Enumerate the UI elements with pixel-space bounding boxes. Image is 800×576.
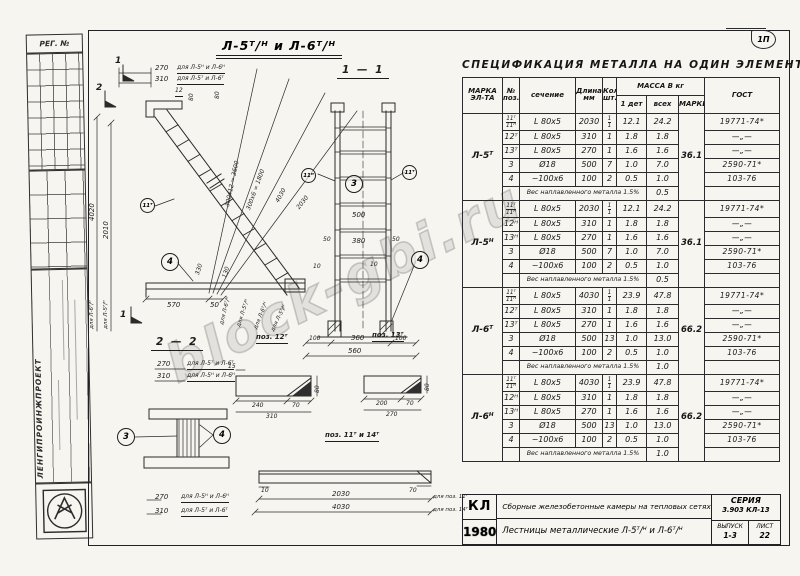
spec-cell: Вес наплавленного металла 1.5%: [520, 360, 647, 374]
col-header-mass-group: МАССА В кг: [617, 77, 705, 95]
spec-row: 12ᴴL 80х531011.81.8—„—: [463, 217, 780, 231]
spec-cell: Ø18: [520, 419, 576, 433]
note-2010: для Л-5ᵀ/ᴴ: [103, 300, 109, 329]
spec-cell: 1.6: [617, 318, 647, 332]
organization-logo: [35, 482, 93, 539]
col-header-mass-all: всех: [647, 95, 679, 113]
spec-cell: 1.8: [647, 130, 679, 144]
spec-cell: 103-76: [705, 172, 780, 186]
spec-cell: 7.0: [647, 158, 679, 172]
spec-cell: [705, 447, 780, 461]
spec-cell: Ø18: [520, 158, 576, 172]
dim-570: 570: [167, 302, 180, 310]
spec-cell: —„—: [705, 130, 780, 144]
spec-cell: 7.0: [647, 245, 679, 259]
spec-row: 13ᴴL 80х527011.61.6—„—: [463, 231, 780, 245]
spec-cell: 0.5: [617, 172, 647, 186]
spec-cell: L 80х5: [520, 304, 576, 318]
spec-cell: 13.0: [647, 332, 679, 346]
spec-cell: Вес наплавленного металла 1.5%: [520, 447, 647, 461]
spec-cell: 23.9: [617, 287, 647, 304]
spec-cell: —„—: [705, 304, 780, 318]
balloon-4-incline: 4: [161, 253, 179, 271]
spec-cell: L 80х5: [520, 287, 576, 304]
spec-cell: 1: [603, 391, 617, 405]
spec-cell: 47.8: [647, 287, 679, 304]
spec-cell: 2: [603, 433, 617, 447]
spec-cell: 100: [576, 433, 603, 447]
sheet-corner-stamp: 1П: [744, 28, 780, 52]
spec-cell: 1.0: [647, 346, 679, 360]
spec-cell: 1.0: [647, 360, 679, 374]
dim-70-p12: 70: [292, 403, 300, 410]
corner-stamp-value: 1П: [751, 30, 776, 49]
spec-cell: 310: [576, 304, 603, 318]
spec-cell: 1: [603, 304, 617, 318]
spec-cell: L 80х5: [520, 391, 576, 405]
spec-cell: —„—: [705, 391, 780, 405]
spec-cell: 500: [576, 245, 603, 259]
spec-mark-mass-cell: 36.1: [679, 200, 705, 287]
dim-310-p12: 310: [266, 414, 277, 421]
organization-name: ЛЕНГИПРОИНЖПРОЕКТ: [33, 274, 45, 478]
spec-cell: 24.2: [647, 113, 679, 130]
spec-cell: 23.9: [617, 374, 647, 391]
spec-cell: 1: [603, 405, 617, 419]
spec-cell: 2: [603, 259, 617, 273]
spec-row: 12ᴴL 80х531011.81.8—„—: [463, 391, 780, 405]
title-block: КЛ 1980 Сборные железобетонные камеры на…: [462, 494, 781, 545]
spec-cell: 100: [576, 346, 603, 360]
spec-cell: 270: [576, 231, 603, 245]
spec-cell: 4030: [576, 374, 603, 391]
spec-cell: L 80х5: [520, 130, 576, 144]
spec-cell: 3: [503, 245, 520, 259]
spec-cell: —„—: [705, 318, 780, 332]
note-310-top: для Л-5ᵀ и Л-6ᵀ: [177, 76, 224, 85]
spec-cell: 12ᴴ: [503, 391, 520, 405]
spec-cell: 12ᵀ: [503, 130, 520, 144]
spec-weld-row: Вес наплавленного металла 1.5%1.0: [463, 360, 780, 374]
title-block-main: Сборные железобетонные камеры на тепловы…: [497, 495, 710, 544]
spec-cell: 1.6: [647, 144, 679, 158]
dim-310-top: 310: [155, 76, 168, 84]
spec-table-section: СПЕЦИФИКАЦИЯ МЕТАЛЛА НА ОДИН ЭЛЕМЕНТ. МА…: [462, 60, 781, 462]
spec-mark-cell: Л-5ᴴ: [463, 200, 503, 287]
spec-cell: 4: [503, 346, 520, 360]
balloon-11t-incline: 11ᵀ: [140, 198, 155, 213]
dim-310-bar: 310: [155, 508, 168, 516]
spec-cell: 2030: [576, 113, 603, 130]
spec-cell: [503, 273, 520, 287]
section-marker-2: 2: [96, 84, 102, 93]
spec-row: 4−100х610020.51.0103-76: [463, 259, 780, 273]
spec-cell: 1.6: [617, 231, 647, 245]
dim-70-bar: 70: [409, 488, 417, 495]
section-marker-1-bottom: 1: [120, 311, 126, 320]
spec-row: 4−100х610020.51.0103-76: [463, 346, 780, 360]
spec-cell: [503, 360, 520, 374]
section-2-2-title: 2 — 2: [151, 337, 203, 351]
spec-weld-row: Вес наплавленного металла 1.5%1.0: [463, 447, 780, 461]
spec-cell: L 80х5: [520, 231, 576, 245]
spec-cell: −100х6: [520, 172, 576, 186]
spec-cell: L 80х5: [520, 113, 576, 130]
spec-cell: 4: [503, 259, 520, 273]
dim-270-s22: 270: [157, 361, 170, 369]
spec-cell: L 80х5: [520, 318, 576, 332]
spec-cell: L 80х5: [520, 217, 576, 231]
spec-cell: Ø18: [520, 332, 576, 346]
issue-label: ВЫПУСК: [717, 523, 743, 530]
balloon-3: 3: [345, 175, 363, 193]
drawing-frame: Л-5ᵀ/ᴴ и Л-6ᵀ/ᴴ 1 2 1 270 для Л-5ᴴ и Л-6…: [88, 30, 790, 546]
spec-cell: 0.5: [617, 346, 647, 360]
spec-cell: 1.0: [647, 433, 679, 447]
logo-emblem-icon: [41, 487, 88, 534]
spec-cell: 11ᵀ11ᴴ: [503, 113, 520, 130]
dim-380: 380: [352, 238, 365, 246]
spec-cell: 11: [603, 200, 617, 217]
spec-cell: 19771-74*: [705, 200, 780, 217]
spec-cell: 3: [503, 419, 520, 433]
spec-cell: 1: [603, 231, 617, 245]
spec-cell: 1.0: [647, 172, 679, 186]
drawing-canvas: [89, 31, 460, 544]
section-marker-1-top: 1: [115, 57, 121, 66]
spec-cell: 500: [576, 332, 603, 346]
title-block-stamp: КЛ 1980: [463, 495, 497, 544]
spec-cell: 7: [603, 245, 617, 259]
spec-cell: 0.5: [617, 433, 647, 447]
side-stamp-column: РЕГ. № ЛЕНГИПРОИНЖПРОЕКТ: [26, 33, 94, 543]
dim-310-s22: 310: [157, 373, 170, 381]
spec-cell: [705, 186, 780, 200]
spec-cell: 13ᴴ: [503, 405, 520, 419]
note-310-bar: для Л-5ᵀ и Л-6ᵀ: [181, 508, 228, 517]
spec-cell: 103-76: [705, 433, 780, 447]
spec-cell: 12.1: [617, 113, 647, 130]
spec-cell: 310: [576, 130, 603, 144]
spec-mark-mass-cell: 66.2: [679, 287, 705, 374]
spec-cell: 1.0: [617, 419, 647, 433]
spec-cell: 13ᵀ: [503, 318, 520, 332]
dim-4020: 4020: [89, 203, 97, 221]
spec-cell: 310: [576, 217, 603, 231]
spec-cell: 1.8: [617, 130, 647, 144]
spec-cell: L 80х5: [520, 374, 576, 391]
spec-cell: —„—: [705, 217, 780, 231]
sheet-name: Лестницы металлические Л-5ᵀ/ᴴ и Л-6ᵀ/ᴴ: [497, 519, 710, 544]
scanned-sheet: РЕГ. № ЛЕНГИПРОИНЖПРОЕКТ block-gbi.ru: [0, 0, 800, 576]
signature-grid-lower: [29, 169, 88, 269]
spec-cell: 1.0: [617, 245, 647, 259]
spec-cell: 47.8: [647, 374, 679, 391]
dim-500: 500: [352, 212, 365, 220]
col-header-pos: № поз.: [503, 77, 520, 113]
spec-cell: 13: [603, 419, 617, 433]
dim-50-right: 50: [392, 237, 400, 244]
spec-cell: L 80х5: [520, 200, 576, 217]
spec-cell: 2030: [576, 200, 603, 217]
spec-cell: 1.8: [647, 217, 679, 231]
spec-cell: 2590-71*: [705, 332, 780, 346]
dim-100-left: 100: [309, 336, 320, 343]
spec-cell: −100х6: [520, 346, 576, 360]
note-270-top: для Л-5ᴴ и Л-6ᴴ: [177, 65, 225, 74]
reg-number-box: РЕГ. №: [26, 33, 83, 53]
spec-cell: L 80х5: [520, 405, 576, 419]
dim-360: 360: [351, 335, 364, 343]
col-header-mass-mark: МАРКИ: [679, 95, 705, 113]
spec-cell: 7: [603, 158, 617, 172]
spec-cell: −100х6: [520, 259, 576, 273]
spec-row: 4−100х610020.51.0103-76: [463, 433, 780, 447]
title-block-right: СЕРИЯ 3.903 КЛ-13 ВЫПУСК 1-3 ЛИСТ 22: [711, 495, 780, 544]
spec-mark-mass-cell: 66.2: [679, 374, 705, 461]
dim-80-p13: 80: [425, 383, 432, 391]
spec-cell: 4: [503, 433, 520, 447]
spec-cell: 0.5: [647, 273, 679, 287]
spec-cell: 4030: [576, 287, 603, 304]
spec-cell: 11ᵀ11ᴴ: [503, 287, 520, 304]
issue-cell: ВЫПУСК 1-3: [712, 521, 750, 544]
spec-cell: 13: [603, 332, 617, 346]
dim-2010: 2010: [103, 221, 111, 239]
spec-cell: 11: [603, 113, 617, 130]
spec-cell: 103-76: [705, 259, 780, 273]
sheet-cell: ЛИСТ 22: [749, 521, 780, 544]
spec-row: 13ᴴL 80х527011.61.6—„—: [463, 405, 780, 419]
dim-10-right: 10: [370, 262, 378, 269]
spec-cell: 1.0: [647, 259, 679, 273]
spec-cell: [705, 360, 780, 374]
stamp-year: 1980: [463, 520, 496, 544]
col-header-length: Длина мм: [576, 77, 603, 113]
spec-cell: Вес наплавленного металла 1.5%: [520, 186, 647, 200]
col-header-mark: МАРКА ЭЛ-ТА: [463, 77, 503, 113]
spec-cell: 1: [603, 318, 617, 332]
dim-4030-bar: 4030: [332, 504, 350, 512]
sheet-value: 22: [749, 532, 780, 540]
spec-cell: 2: [603, 172, 617, 186]
spec-cell: 1.0: [617, 158, 647, 172]
spec-cell: −100х6: [520, 433, 576, 447]
project-name: Сборные железобетонные камеры на тепловы…: [497, 495, 710, 519]
spec-cell: 13.0: [647, 419, 679, 433]
spec-cell: 19771-74*: [705, 287, 780, 304]
ladder-main-title: Л-5ᵀ/ᴴ и Л-6ᵀ/ᴴ: [216, 40, 342, 59]
spec-cell: —„—: [705, 231, 780, 245]
organization-block: ЛЕНГИПРОИНЖПРОЕКТ: [31, 268, 92, 483]
spec-weld-row: Вес наплавленного металла 1.5%0.5: [463, 186, 780, 200]
spec-cell: 1.0: [647, 447, 679, 461]
spec-cell: 1.0: [617, 332, 647, 346]
spec-cell: 3: [503, 332, 520, 346]
note-270-s22: для Л-5ᵀ и Л-6ᵀ: [187, 361, 234, 370]
spec-cell: 11: [603, 374, 617, 391]
spec-row: 12ᵀL 80х531011.81.8—„—: [463, 130, 780, 144]
spec-cell: 310: [576, 391, 603, 405]
spec-cell: 1.6: [617, 144, 647, 158]
spec-cell: 11: [603, 287, 617, 304]
spec-cell: 12ᴴ: [503, 217, 520, 231]
spec-row: 13ᵀL 80х527011.61.6—„—: [463, 318, 780, 332]
spec-mark-cell: Л-6ᴴ: [463, 374, 503, 461]
note-270-bar: для Л-5ᴴ и Л-6ᴴ: [181, 494, 229, 503]
note-310-s22: для Л-5ᴴ и Л-6ᴴ: [187, 373, 235, 382]
spec-cell: 1.8: [617, 391, 647, 405]
dim-80-p12: 80: [315, 385, 322, 393]
dim-270-p13: 270: [386, 412, 397, 419]
section-1-1-title: 1 — 1: [337, 65, 389, 79]
signature-grid-upper: [26, 52, 85, 170]
spec-cell: 1: [603, 217, 617, 231]
spec-cell: 4: [503, 172, 520, 186]
spec-cell: L 80х5: [520, 144, 576, 158]
spec-weld-row: Вес наплавленного металла 1.5%0.5: [463, 273, 780, 287]
spec-cell: 270: [576, 405, 603, 419]
dim-270-bar: 270: [155, 494, 168, 502]
dim-560: 560: [348, 348, 361, 356]
stamp-kl: КЛ: [463, 495, 496, 520]
balloon-11t: 11ᵀ: [402, 165, 417, 180]
spec-cell: 103-76: [705, 346, 780, 360]
spec-mark-mass-cell: 36.1: [679, 113, 705, 200]
spec-cell: 2: [603, 346, 617, 360]
spec-cell: 19771-74*: [705, 113, 780, 130]
note-4020: для Л-6ᵀ/ᴴ: [89, 300, 95, 329]
spec-row: 3Ø1850071.07.02590-71*: [463, 158, 780, 172]
spec-cell: 1.8: [647, 391, 679, 405]
dim-50-incline: 50: [210, 302, 219, 310]
spec-mark-cell: Л-5ᵀ: [463, 113, 503, 200]
spec-cell: 1.6: [647, 405, 679, 419]
spec-mark-cell: Л-6ᵀ: [463, 287, 503, 374]
dim-50-left: 50: [323, 237, 331, 244]
dim-2030-bar: 2030: [332, 491, 350, 499]
spec-cell: [503, 186, 520, 200]
spec-cell: 500: [576, 158, 603, 172]
spec-cell: 13ᴴ: [503, 231, 520, 245]
lbl-80a: 80: [189, 93, 196, 101]
spec-cell: 3: [503, 158, 520, 172]
spec-row: 3Ø18500131.013.02590-71*: [463, 419, 780, 433]
spec-table: МАРКА ЭЛ-ТА № поз. сечение Длина мм Кол.…: [462, 77, 780, 462]
spec-cell: 1.8: [617, 304, 647, 318]
spec-cell: 13ᵀ: [503, 144, 520, 158]
spec-cell: 24.2: [647, 200, 679, 217]
spec-cell: 1: [603, 144, 617, 158]
spec-cell: [503, 447, 520, 461]
col-header-section: сечение: [520, 77, 576, 113]
spec-row: Л-6ᵀ11ᵀ11ᴴL 80х540301123.947.866.219771-…: [463, 287, 780, 304]
dim-240-p12: 240: [252, 403, 263, 410]
spec-row: Л-5ᵀ11ᵀ11ᴴL 80х520301112.124.236.119771-…: [463, 113, 780, 130]
spec-cell: 1.6: [647, 318, 679, 332]
dim-270-top: 270: [155, 65, 168, 73]
balloon-4-s22: 4: [213, 426, 231, 444]
lbl-12: 12: [175, 88, 183, 97]
spec-cell: 1.6: [617, 405, 647, 419]
spec-cell: Ø18: [520, 245, 576, 259]
spec-cell: 11ᵀ11ᴴ: [503, 200, 520, 217]
pos-13-title: поз. 13ᵀ: [372, 332, 404, 342]
spec-cell: 2590-71*: [705, 419, 780, 433]
dim-10-bar: 10: [261, 488, 269, 495]
spec-cell: 1.8: [617, 217, 647, 231]
spec-cell: 19771-74*: [705, 374, 780, 391]
dim-70-p13: 70: [406, 401, 414, 408]
lbl-80b: 80: [215, 91, 222, 99]
spec-cell: 12ᵀ: [503, 304, 520, 318]
col-header-gost: ГОСТ: [705, 77, 780, 113]
spec-cell: Вес наплавленного металла 1.5%: [520, 273, 647, 287]
pos-12-title: поз. 12ᵀ: [256, 334, 288, 344]
balloon-4: 4: [411, 251, 429, 269]
spec-cell: [705, 273, 780, 287]
spec-cell: 100: [576, 172, 603, 186]
spec-row: 3Ø18500131.013.02590-71*: [463, 332, 780, 346]
col-header-mass-one: 1 дет: [617, 95, 647, 113]
dim-10-left: 10: [313, 264, 321, 271]
spec-cell: 2590-71*: [705, 245, 780, 259]
dim-200-p13: 200: [376, 401, 387, 408]
balloon-3-s22: 3: [117, 428, 135, 446]
spec-cell: 0.5: [617, 259, 647, 273]
dim-15-p12: 15: [228, 364, 236, 371]
spec-cell: 12.1: [617, 200, 647, 217]
sheet-label: ЛИСТ: [756, 523, 773, 530]
spec-row: 4−100х610020.51.0103-76: [463, 172, 780, 186]
balloon-11n: 11ᴴ: [301, 168, 316, 183]
spec-cell: 500: [576, 419, 603, 433]
pos-11-14-title: поз. 11ᵀ и 14ᵀ: [325, 432, 379, 442]
spec-cell: 1.8: [647, 304, 679, 318]
spec-cell: 1: [603, 130, 617, 144]
series-label: СЕРИЯ: [731, 496, 761, 505]
spec-cell: 1.6: [647, 231, 679, 245]
spec-cell: 100: [576, 259, 603, 273]
spec-cell: 270: [576, 318, 603, 332]
spec-row: 3Ø1850071.07.02590-71*: [463, 245, 780, 259]
spec-row: Л-6ᴴ11ᵀ11ᴴL 80х540301123.947.866.219771-…: [463, 374, 780, 391]
spec-cell: 11ᵀ11ᴴ: [503, 374, 520, 391]
spec-row: Л-5ᴴ11ᵀ11ᴴL 80х520301112.124.236.119771-…: [463, 200, 780, 217]
issue-value: 1-3: [712, 532, 749, 540]
reg-number-label: РЕГ. №: [39, 39, 69, 49]
spec-row: 12ᵀL 80х531011.81.8—„—: [463, 304, 780, 318]
series-cell: СЕРИЯ 3.903 КЛ-13: [712, 495, 780, 521]
spec-cell: 2590-71*: [705, 158, 780, 172]
spec-cell: —„—: [705, 144, 780, 158]
series-value: 3.903 КЛ-13: [712, 507, 780, 514]
spec-row: 13ᵀL 80х527011.61.6—„—: [463, 144, 780, 158]
spec-cell: 0.5: [647, 186, 679, 200]
spec-cell: 270: [576, 144, 603, 158]
spec-table-title: СПЕЦИФИКАЦИЯ МЕТАЛЛА НА ОДИН ЭЛЕМЕНТ.: [462, 60, 781, 77]
spec-cell: —„—: [705, 405, 780, 419]
col-header-qty: Кол. шт.: [603, 77, 617, 113]
